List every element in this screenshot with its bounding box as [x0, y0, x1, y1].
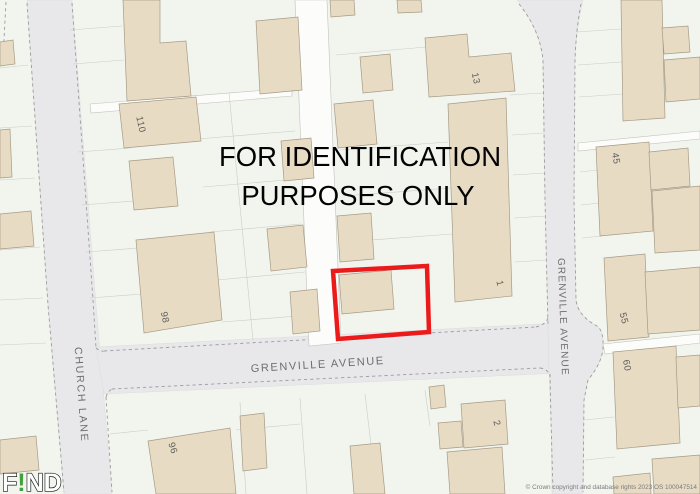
building-in-selected-plot [339, 270, 394, 314]
house-number-13: 13 [469, 72, 482, 86]
logo-f: F [2, 469, 17, 494]
house-number-45: 45 [609, 152, 622, 165]
building-55 [604, 254, 649, 341]
logo-nd: ND [26, 469, 62, 494]
overlay-line-1: FOR IDENTIFICATION [219, 141, 501, 172]
building-110 [119, 97, 201, 148]
building-45 [596, 142, 653, 236]
copyright-attribution: © Crown copyright and database rights 20… [526, 483, 698, 491]
find-logo: F!ND [2, 469, 62, 494]
overlay-line-2: PURPOSES ONLY [241, 180, 474, 211]
building-98 [136, 232, 222, 333]
house-number-60: 60 [620, 359, 633, 372]
map-canvas: 110 98 96 13 1 2 45 55 60 CHURCH LANE GR… [0, 0, 700, 494]
logo-exclamation: ! [17, 469, 25, 494]
house-number-98: 98 [158, 311, 171, 325]
